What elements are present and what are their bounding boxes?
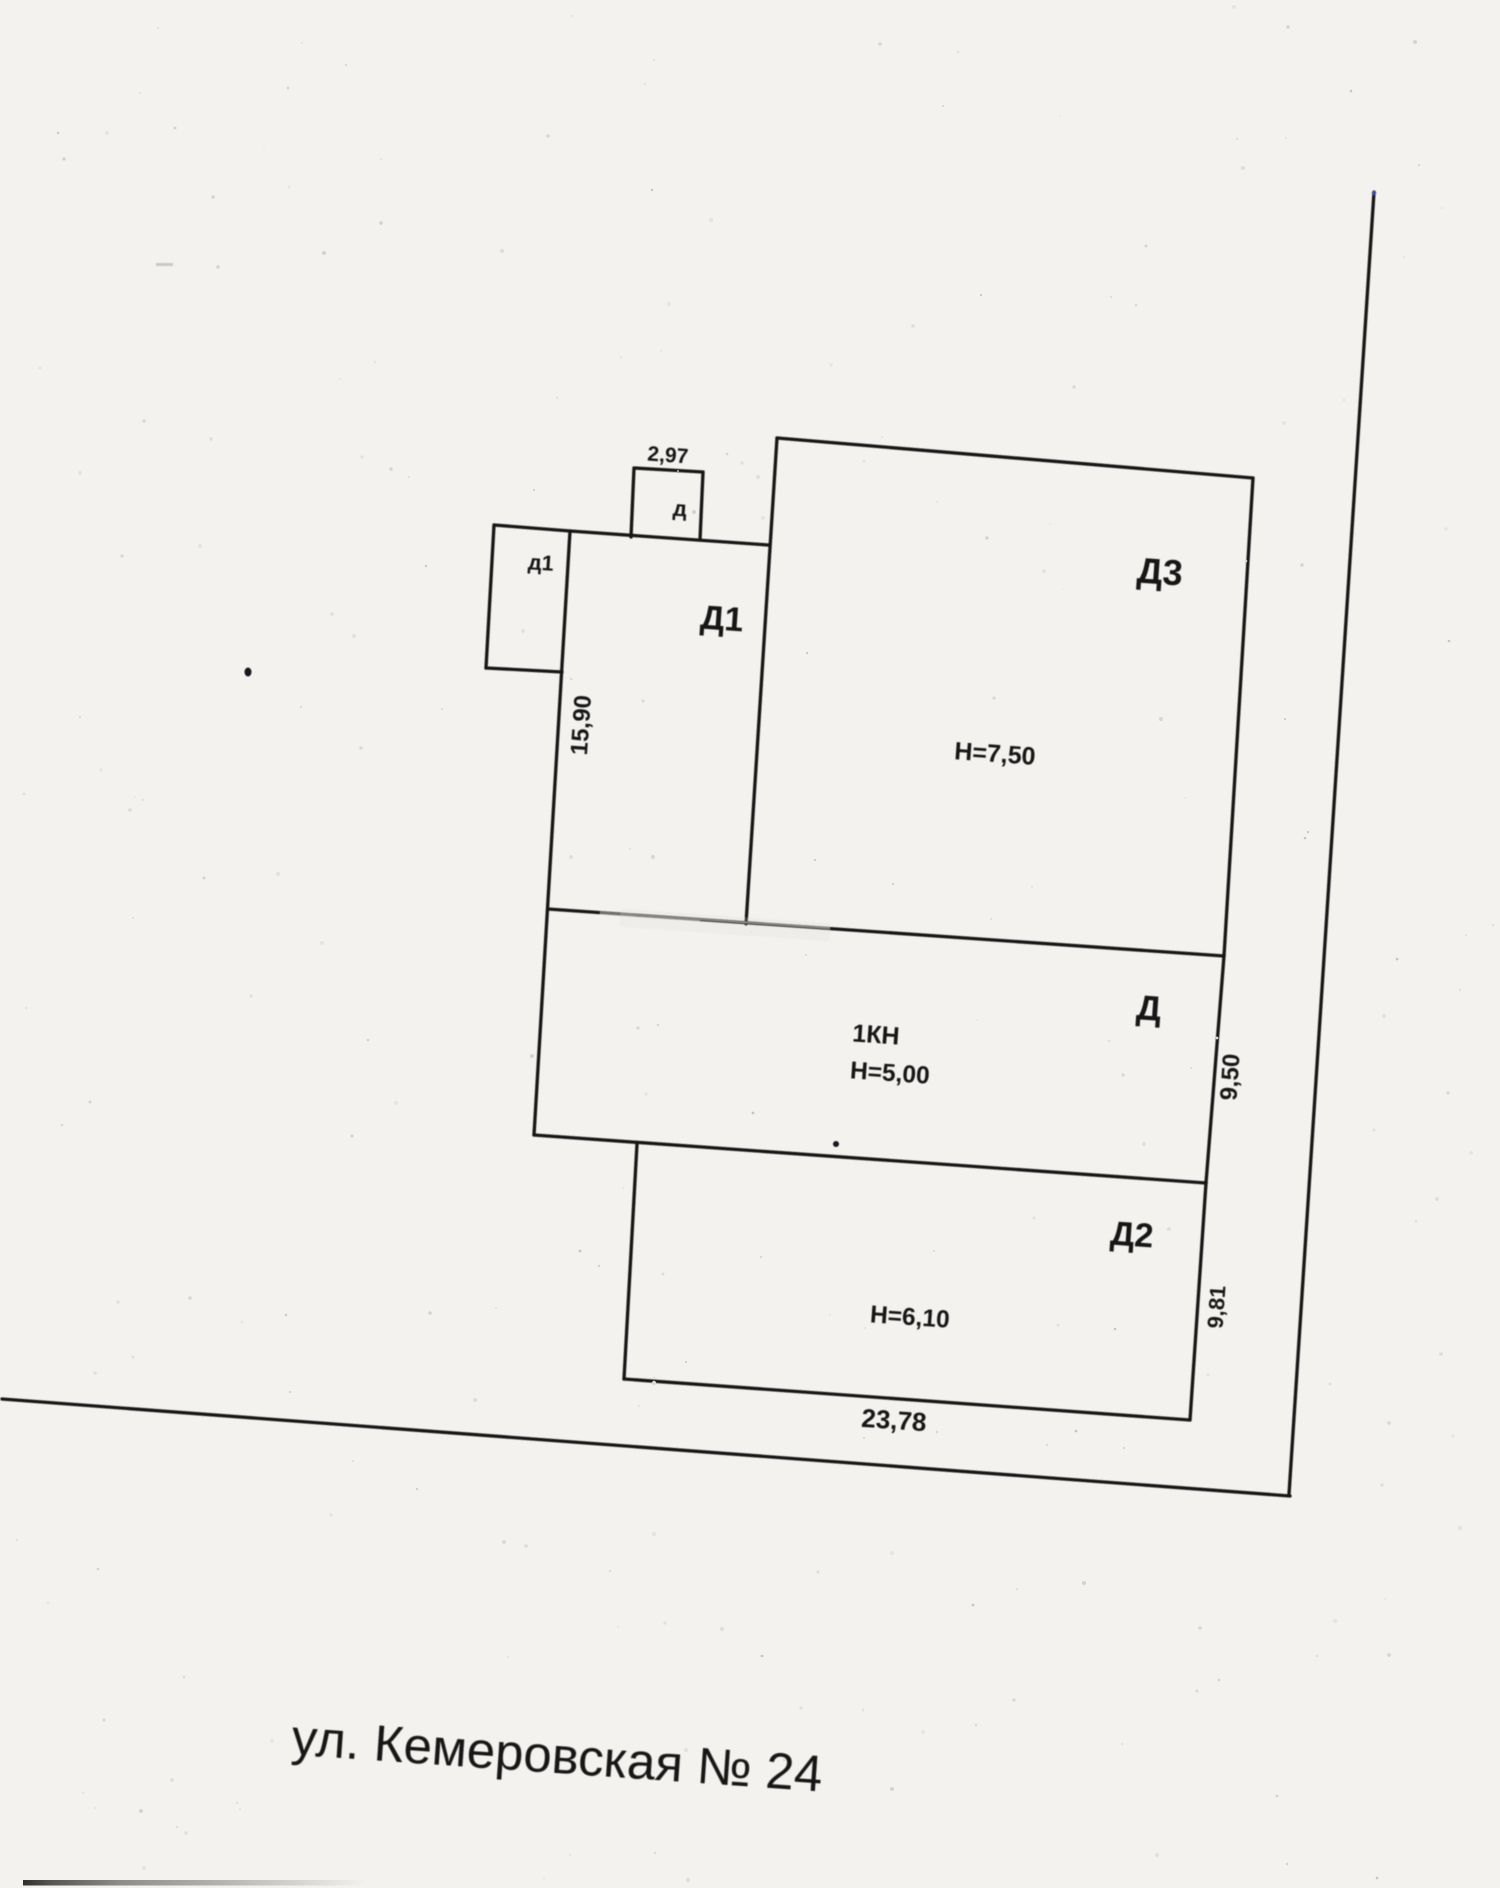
svg-text:1КН: 1КН — [851, 1019, 900, 1050]
svg-text:Д1: Д1 — [699, 599, 745, 640]
svg-text:9,81: 9,81 — [1203, 1285, 1231, 1329]
svg-text:Д2: Д2 — [1109, 1215, 1155, 1256]
svg-text:Н=7,50: Н=7,50 — [953, 737, 1036, 771]
svg-text:д1: д1 — [527, 550, 554, 576]
svg-text:9,50: 9,50 — [1215, 1053, 1245, 1101]
svg-text:д: д — [672, 496, 688, 522]
svg-text:15,90: 15,90 — [566, 694, 597, 756]
svg-text:Н=5,00: Н=5,00 — [849, 1057, 930, 1089]
svg-text:Д3: Д3 — [1136, 549, 1184, 593]
svg-text:Д: Д — [1135, 988, 1163, 1029]
svg-text:Н=6,10: Н=6,10 — [869, 1301, 950, 1333]
svg-text:23,78: 23,78 — [860, 1403, 927, 1437]
svg-text:2,97: 2,97 — [647, 443, 689, 469]
